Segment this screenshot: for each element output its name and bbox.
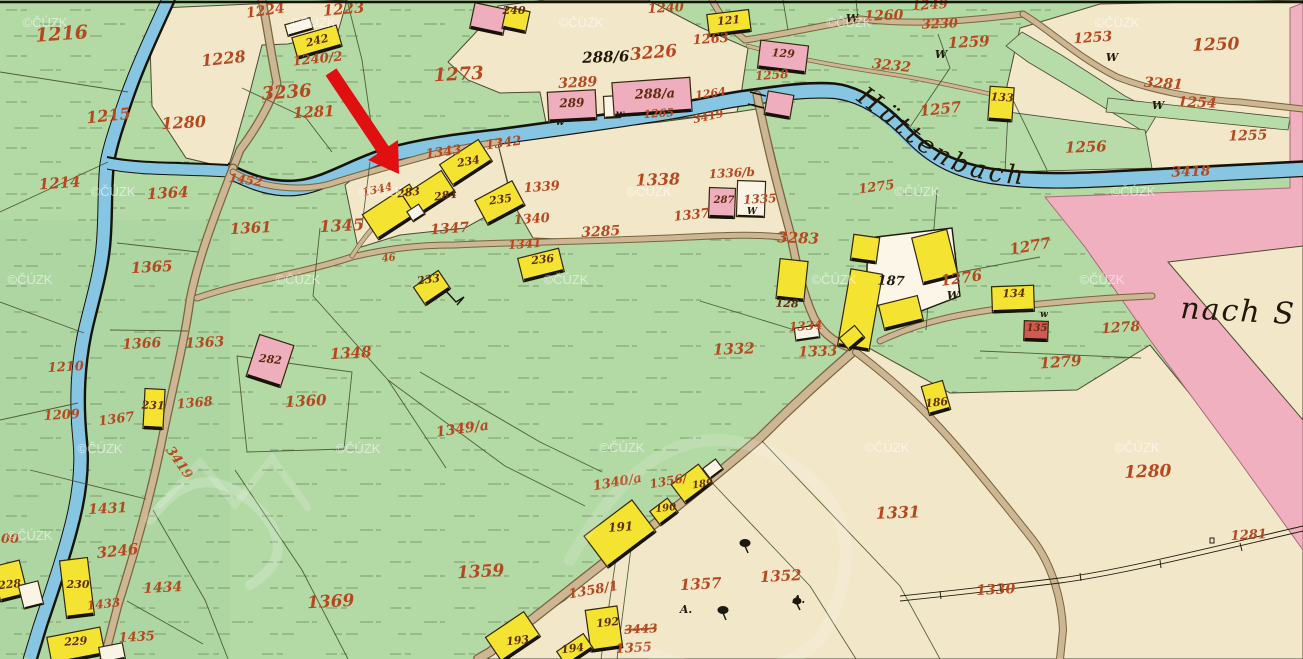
map-annotation: W bbox=[1152, 99, 1166, 112]
watermark-text: ©ČÚZK bbox=[359, 184, 404, 199]
building-number: 282 bbox=[257, 352, 283, 367]
map-annotation: W bbox=[747, 207, 758, 217]
map-annotation: A. bbox=[679, 603, 693, 616]
parcel-number: 3281 bbox=[1143, 75, 1183, 94]
parcel-number: 1253 bbox=[1073, 29, 1113, 48]
parcel-number: 1434 bbox=[143, 579, 183, 597]
parcel-number: 1259 bbox=[947, 32, 990, 52]
building bbox=[764, 91, 794, 119]
parcel-number: 1363 bbox=[185, 334, 225, 352]
parcel-number: 1334 bbox=[789, 318, 823, 334]
building-number: 289 bbox=[558, 96, 585, 111]
building-number: 121 bbox=[717, 13, 741, 28]
parcel-number: 1431 bbox=[88, 500, 128, 518]
map-annotation: 187 bbox=[877, 274, 905, 290]
direction-note-label: nach S bbox=[1180, 291, 1297, 332]
building-number: 133 bbox=[990, 90, 1014, 104]
parcel-number: 1332 bbox=[713, 339, 755, 358]
building-number: 287 bbox=[713, 195, 735, 206]
parcel-number: 1263 bbox=[692, 31, 729, 48]
watermark-text: ©ČÚZK bbox=[1080, 272, 1125, 287]
parcel-number: 1210 bbox=[47, 359, 84, 376]
building bbox=[850, 234, 879, 263]
parcel-number: 3236 bbox=[261, 80, 313, 104]
watermark-text: ©ČÚZK bbox=[1111, 184, 1156, 199]
parcel-number: 1345 bbox=[319, 215, 364, 236]
parcel-number: 1347 bbox=[430, 220, 470, 239]
map-annotation: W bbox=[1106, 51, 1120, 64]
parcel-number: 1364 bbox=[146, 183, 189, 203]
parcel-number: 1360 bbox=[284, 391, 327, 411]
parcel-number: 1279 bbox=[1039, 352, 1082, 373]
parcel-number: 1366 bbox=[122, 335, 162, 353]
map-annotation: W bbox=[947, 289, 961, 302]
parcel-number: 1250 bbox=[1192, 34, 1240, 56]
parcel-number: 1258 bbox=[755, 67, 790, 83]
parcel-number: 3285 bbox=[581, 223, 621, 241]
watermark-text: ©ČÚZK bbox=[627, 184, 672, 199]
parcel-number: 1340 bbox=[513, 211, 550, 228]
watermark-text: ©ČÚZK bbox=[1115, 440, 1160, 455]
watermark-text: ©ČÚZK bbox=[865, 440, 910, 455]
parcel-number: 1435 bbox=[118, 629, 155, 646]
watermark-text: ©ČÚZK bbox=[336, 441, 381, 456]
building-number: 193 bbox=[506, 633, 531, 648]
building-number: 191 bbox=[608, 519, 634, 535]
parcel-number: 1333 bbox=[798, 343, 838, 360]
parcel-number: 1209 bbox=[43, 407, 80, 424]
building-number: 231 bbox=[140, 399, 164, 413]
parcel-number: 46 bbox=[381, 252, 396, 264]
parcel-number: 1357 bbox=[679, 574, 722, 594]
parcel-number: 1280 bbox=[161, 112, 206, 133]
watermark-text: ©ČÚZK bbox=[544, 272, 589, 287]
map-annotation: W bbox=[935, 48, 949, 61]
parcel-number: 1341 bbox=[508, 236, 542, 252]
parcel-number: 1281 bbox=[1230, 527, 1267, 544]
parcel-number: 1361 bbox=[229, 218, 272, 238]
building-number: 135 bbox=[1027, 323, 1048, 334]
building-number: 229 bbox=[63, 634, 88, 649]
watermark-text: ©ČÚZK bbox=[276, 272, 321, 287]
building-number: 129 bbox=[771, 46, 795, 61]
cadastral-map: 121612281224122312151280323612811240/224… bbox=[0, 0, 1303, 659]
building bbox=[776, 259, 808, 302]
map-annotation: w bbox=[1040, 310, 1048, 320]
parcel-number: 1214 bbox=[38, 173, 81, 194]
building-number: 186 bbox=[925, 395, 950, 410]
watermark-text: ©ČÚZK bbox=[895, 184, 940, 199]
parcel-number: 1273 bbox=[433, 63, 484, 87]
parcel-number: 1280 bbox=[1124, 461, 1172, 483]
building-number: 192 bbox=[596, 615, 621, 630]
parcel-number: 1336/b bbox=[708, 165, 755, 181]
watermark-text: ©ČÚZK bbox=[8, 272, 53, 287]
parcel-number: 1352 bbox=[759, 566, 802, 586]
parcel-number: 1255 bbox=[1228, 127, 1268, 144]
parcel-number: 3226 bbox=[629, 41, 678, 65]
parcel-number: 3283 bbox=[777, 228, 819, 247]
parcel-number: 1339 bbox=[523, 179, 560, 196]
parcel-number: 1256 bbox=[1065, 137, 1108, 156]
map-annotation: A. bbox=[792, 593, 806, 606]
watermark-text: ©ČÚZK bbox=[8, 528, 53, 543]
building-number: 240 bbox=[502, 4, 526, 17]
watermark-text: ©ČÚZK bbox=[559, 15, 604, 30]
map-viewport[interactable]: 121612281224122312151280323612811240/224… bbox=[0, 0, 1303, 659]
parcel-number: 3289 bbox=[558, 74, 598, 92]
parcel-number: 1281 bbox=[292, 102, 335, 122]
parcel-number: 1359 bbox=[457, 561, 505, 583]
watermark-text: ©ČÚZK bbox=[23, 15, 68, 30]
map-annotation: w bbox=[556, 117, 565, 128]
building-number: 128 bbox=[775, 297, 799, 311]
building-number: 236 bbox=[530, 252, 556, 267]
parcel-number: 1335 bbox=[743, 191, 777, 207]
parcel-number: 1348 bbox=[329, 343, 372, 363]
building-number: 190 bbox=[655, 502, 677, 515]
parcel-number: 1368 bbox=[176, 394, 213, 412]
parcel-number: 1330 bbox=[976, 581, 1016, 599]
building-number: 134 bbox=[1002, 287, 1025, 301]
watermark-text: ©ČÚZK bbox=[1095, 15, 1140, 30]
parcel-number: 1331 bbox=[875, 502, 920, 523]
building-number: 230 bbox=[66, 578, 90, 591]
parcel-number: 1369 bbox=[307, 591, 355, 613]
map-annotation: 288/6 bbox=[581, 47, 630, 67]
parcel-number: 1254 bbox=[1177, 94, 1217, 111]
watermark-text: ©ČÚZK bbox=[600, 440, 645, 455]
parcel-number: 3230 bbox=[922, 16, 959, 32]
map-annotation: w bbox=[616, 109, 625, 120]
parcel-number: 3418 bbox=[1171, 163, 1211, 180]
building-number: 194 bbox=[561, 641, 585, 656]
watermark-text: ©ČÚZK bbox=[827, 15, 872, 30]
building-number: 228 bbox=[0, 577, 22, 592]
parcel-number: 1278 bbox=[1101, 319, 1141, 338]
parcel-number: 1265 bbox=[643, 106, 674, 121]
watermark-text: ©ČÚZK bbox=[291, 15, 336, 30]
watermark-text: ©ČÚZK bbox=[78, 441, 123, 456]
parcel-number: 1365 bbox=[130, 257, 173, 277]
building-number: 288/a bbox=[633, 86, 675, 102]
watermark-text: ©ČÚZK bbox=[91, 184, 136, 199]
watermark-text: ©ČÚZK bbox=[812, 272, 857, 287]
